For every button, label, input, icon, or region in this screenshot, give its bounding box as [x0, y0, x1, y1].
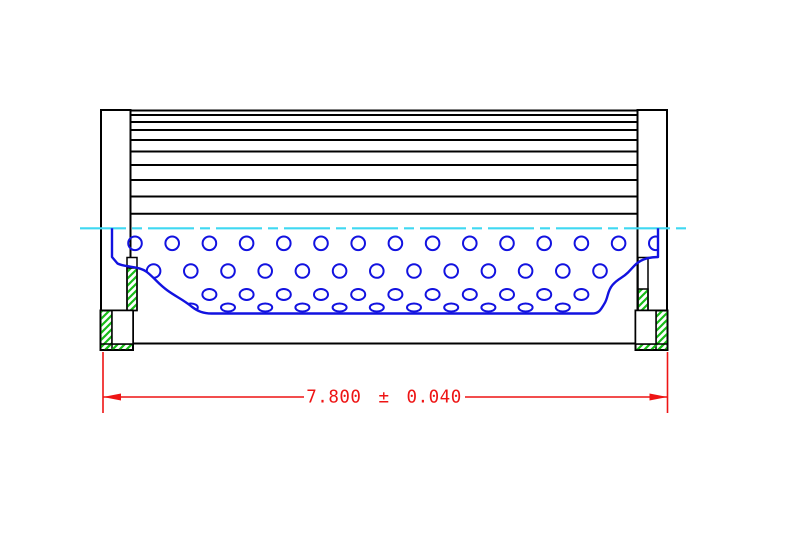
foot-right — [636, 311, 668, 351]
end-cap-left — [101, 110, 131, 311]
foot-bottom-hatch — [636, 344, 668, 350]
foot-inner-box — [636, 311, 657, 345]
dimension-text: 7.800 ± 0.040 — [306, 388, 461, 408]
seam-hatch — [638, 289, 648, 311]
foot-inner-box — [112, 311, 133, 345]
foot-bottom-hatch — [101, 344, 134, 350]
seam-hatch — [127, 268, 137, 311]
foot-left — [101, 311, 134, 351]
drawing-canvas: 7.800 ± 0.040 — [0, 0, 789, 546]
filter-element-drawing: 7.800 ± 0.040 — [0, 0, 789, 546]
seam-right — [638, 258, 648, 311]
